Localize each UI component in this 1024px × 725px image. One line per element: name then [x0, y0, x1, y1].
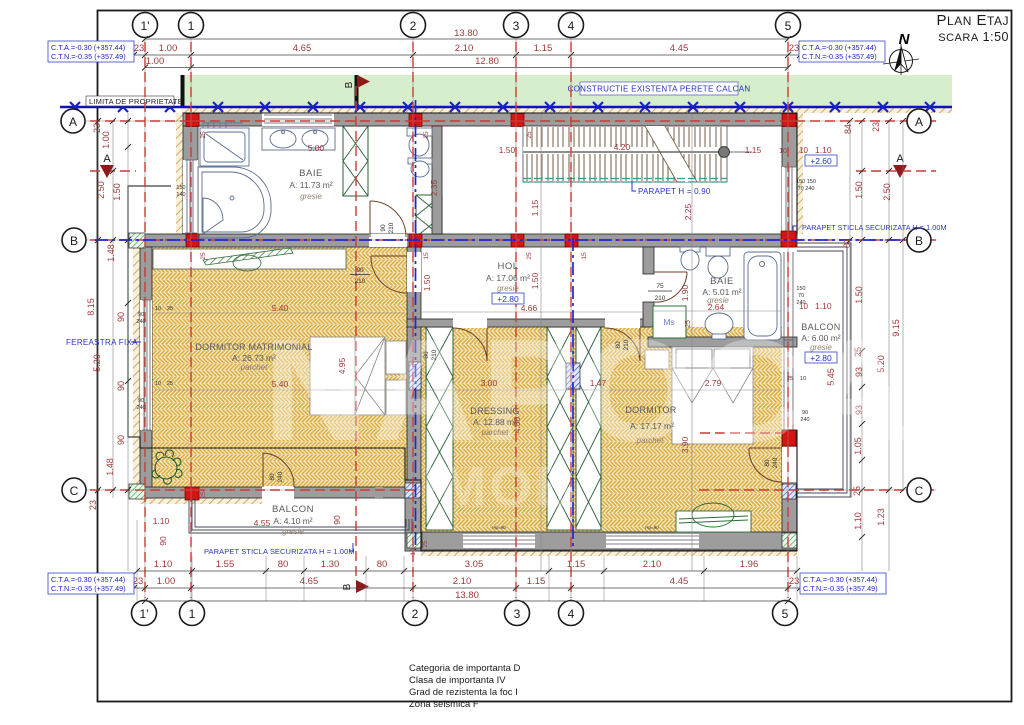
svg-text:4.65: 4.65: [293, 43, 312, 54]
svg-text:BAIE: BAIE: [299, 168, 323, 179]
svg-text:2.50: 2.50: [882, 183, 892, 201]
svg-text:80: 80: [615, 341, 622, 349]
svg-text:1: 1: [188, 19, 195, 33]
svg-text:90: 90: [380, 224, 387, 232]
svg-text:25: 25: [167, 381, 173, 387]
svg-text:1': 1': [140, 607, 149, 621]
svg-text:15: 15: [581, 252, 588, 260]
svg-text:23: 23: [789, 43, 800, 54]
svg-text:90: 90: [356, 267, 364, 274]
svg-text:84: 84: [843, 124, 853, 134]
svg-text:1.30: 1.30: [321, 559, 340, 570]
svg-text:1.00: 1.00: [157, 576, 176, 587]
svg-text:1.10: 1.10: [154, 559, 173, 570]
svg-text:25: 25: [526, 131, 533, 139]
svg-text:5.40: 5.40: [272, 379, 289, 389]
svg-text:1.15: 1.15: [527, 576, 546, 587]
svg-text:90: 90: [116, 312, 126, 322]
svg-text:1.50: 1.50: [112, 183, 122, 201]
svg-text:A: 12.88 m²: A: 12.88 m²: [473, 417, 517, 427]
svg-text:23: 23: [88, 500, 98, 510]
svg-text:C.T.A.=-0.30 (+357.44): C.T.A.=-0.30 (+357.44): [51, 43, 125, 52]
svg-text:A: 6.00 m²: A: 6.00 m²: [801, 333, 840, 343]
svg-text:15: 15: [423, 252, 430, 260]
svg-text:90: 90: [116, 435, 126, 445]
svg-text:10: 10: [799, 146, 808, 155]
svg-text:4.55: 4.55: [254, 518, 271, 528]
svg-text:2.10: 2.10: [643, 559, 662, 570]
svg-text:B: B: [344, 81, 355, 88]
svg-text:parchet: parchet: [240, 363, 268, 372]
svg-text:240: 240: [796, 300, 805, 306]
svg-text:70 240: 70 240: [798, 186, 815, 192]
svg-text:210: 210: [355, 278, 366, 285]
svg-text:1.50: 1.50: [854, 181, 864, 199]
svg-text:1.10: 1.10: [815, 145, 832, 155]
svg-text:1.48: 1.48: [106, 244, 116, 262]
svg-text:1: 1: [189, 607, 196, 621]
svg-text:A: A: [915, 115, 923, 129]
svg-text:25: 25: [200, 252, 207, 260]
svg-text:5.20: 5.20: [92, 354, 102, 372]
svg-text:1.00: 1.00: [146, 56, 165, 67]
svg-text:C.T.A.=-0.30 (+357.44): C.T.A.=-0.30 (+357.44): [803, 575, 877, 584]
svg-text:CONSTRUCTIE EXISTENTA PERETE C: CONSTRUCTIE EXISTENTA PERETE CALCAN: [568, 85, 751, 94]
svg-text:C.T.A.=-0.30 (+357.44): C.T.A.=-0.30 (+357.44): [802, 43, 876, 52]
svg-text:A: A: [103, 153, 111, 165]
svg-text:PLAN ETAJ: PLAN ETAJ: [937, 12, 1010, 29]
svg-text:C: C: [70, 484, 79, 498]
svg-text:4.45: 4.45: [670, 576, 689, 587]
svg-text:C.T.A.=-0.30 (+357.44): C.T.A.=-0.30 (+357.44): [51, 575, 125, 584]
svg-text:3.00: 3.00: [481, 378, 498, 388]
svg-text:25: 25: [200, 131, 207, 139]
svg-text:90: 90: [116, 381, 126, 391]
svg-text:4.65: 4.65: [300, 576, 319, 587]
svg-text:IMOB: IMOB: [422, 455, 578, 517]
svg-text:gresie: gresie: [282, 527, 304, 536]
svg-text:1.50: 1.50: [854, 286, 864, 304]
svg-text:+2.80: +2.80: [497, 294, 519, 304]
svg-text:2.10: 2.10: [455, 43, 474, 54]
svg-text:5.40: 5.40: [272, 303, 289, 313]
svg-text:BAIE: BAIE: [710, 276, 734, 287]
svg-text:90: 90: [138, 312, 144, 318]
svg-text:240: 240: [136, 319, 145, 325]
svg-text:FEREASTRA FIXA: FEREASTRA FIXA: [66, 338, 138, 347]
svg-text:SCARA 1:50: SCARA 1:50: [938, 30, 1009, 44]
svg-text:13.80: 13.80: [454, 28, 478, 39]
svg-text:1.90: 1.90: [680, 284, 690, 301]
svg-text:C.T.N.=-0.35 (+357.49): C.T.N.=-0.35 (+357.49): [51, 584, 126, 593]
svg-text:1.10: 1.10: [853, 512, 863, 530]
svg-text:8.15: 8.15: [86, 298, 96, 316]
svg-text:10: 10: [410, 548, 417, 556]
svg-text:2: 2: [410, 19, 417, 33]
svg-text:4.30: 4.30: [512, 416, 522, 433]
svg-text:80: 80: [278, 559, 289, 570]
svg-text:BALCON: BALCON: [272, 504, 314, 515]
svg-text:150 150: 150 150: [796, 179, 816, 185]
svg-text:4.95: 4.95: [337, 357, 347, 374]
svg-text:4.66: 4.66: [521, 303, 538, 313]
svg-text:A: 17.17 m²: A: 17.17 m²: [630, 421, 674, 431]
svg-text:240: 240: [277, 471, 284, 482]
svg-text:150: 150: [796, 286, 805, 292]
svg-text:150: 150: [176, 185, 185, 191]
svg-text:B: B: [915, 234, 923, 248]
svg-text:C.T.N.=-0.35 (+357.49): C.T.N.=-0.35 (+357.49): [803, 584, 878, 593]
svg-text:1.47: 1.47: [590, 378, 607, 388]
svg-text:BALCON: BALCON: [801, 322, 840, 332]
svg-text:1.48: 1.48: [105, 458, 115, 476]
svg-text:80: 80: [269, 473, 276, 481]
svg-text:Clasa de importanta IV: Clasa de importanta IV: [409, 675, 506, 686]
svg-text:3: 3: [514, 607, 521, 621]
svg-text:1.15: 1.15: [567, 559, 586, 570]
svg-text:B: B: [342, 583, 353, 590]
svg-text:25: 25: [852, 486, 862, 496]
svg-text:1.50: 1.50: [499, 145, 516, 155]
svg-text:1.50: 1.50: [422, 274, 432, 291]
svg-text:25: 25: [422, 540, 429, 548]
svg-text:1.15: 1.15: [534, 43, 553, 54]
svg-text:1': 1': [141, 19, 150, 33]
svg-text:210: 210: [431, 349, 438, 360]
svg-text:Categoria de importanta D: Categoria de importanta D: [409, 663, 521, 674]
svg-text:25: 25: [200, 491, 207, 499]
svg-text:75: 75: [656, 283, 664, 290]
svg-text:1.15: 1.15: [530, 199, 540, 216]
svg-text:parchet: parchet: [481, 428, 509, 437]
svg-text:1.10: 1.10: [153, 516, 170, 526]
svg-text:13.80: 13.80: [455, 590, 479, 601]
svg-text:10: 10: [155, 306, 161, 312]
svg-text:A: 26.73 m²: A: 26.73 m²: [232, 353, 276, 363]
svg-text:210: 210: [388, 222, 395, 233]
svg-text:5.00: 5.00: [308, 143, 325, 153]
svg-text:4.20: 4.20: [614, 142, 631, 152]
svg-text:parchet: parchet: [636, 436, 664, 445]
svg-text:1.00: 1.00: [159, 43, 178, 54]
svg-text:5: 5: [785, 19, 792, 33]
svg-text:25: 25: [526, 252, 533, 260]
svg-text:DRESSING: DRESSING: [470, 406, 519, 416]
svg-text:HOL: HOL: [497, 261, 518, 272]
svg-text:3.90: 3.90: [680, 436, 690, 453]
svg-text:2: 2: [412, 607, 419, 621]
svg-text:3.05: 3.05: [465, 559, 484, 570]
svg-text:140: 140: [176, 192, 185, 198]
svg-text:A: 17.06 m²: A: 17.06 m²: [486, 273, 530, 283]
svg-text:A: A: [69, 115, 77, 129]
svg-text:C.T.N.=-0.35 (+357.49): C.T.N.=-0.35 (+357.49): [51, 52, 126, 61]
svg-text:90: 90: [158, 536, 168, 546]
svg-text:4: 4: [568, 19, 575, 33]
svg-text:LIMITA DE PROPRIETATE: LIMITA DE PROPRIETATE: [89, 97, 183, 106]
svg-text:A: 4.10 m²: A: 4.10 m²: [273, 516, 312, 526]
svg-text:1.15: 1.15: [745, 145, 762, 155]
svg-text:gresie: gresie: [810, 343, 832, 352]
svg-text:PARAPET STICLA SECURIZATA H =: PARAPET STICLA SECURIZATA H = 1.00M: [802, 223, 947, 232]
svg-text:B: B: [70, 234, 78, 248]
svg-text:2.79: 2.79: [705, 378, 722, 388]
svg-text:2.25: 2.25: [683, 203, 693, 220]
svg-text:Zona seismica F: Zona seismica F: [409, 699, 479, 710]
svg-text:Hp=90: Hp=90: [492, 525, 506, 530]
svg-text:81: 81: [842, 238, 852, 248]
svg-text:2.35: 2.35: [429, 179, 439, 196]
svg-text:240: 240: [772, 457, 779, 468]
svg-text:A: 11.73 m²: A: 11.73 m²: [289, 180, 332, 190]
svg-text:80: 80: [764, 459, 771, 467]
svg-text:PARAPET STICLA SECURIZATA H =: PARAPET STICLA SECURIZATA H = 1.00M: [204, 547, 355, 556]
svg-text:23: 23: [134, 43, 145, 54]
svg-text:1.00: 1.00: [101, 131, 111, 149]
svg-text:5: 5: [782, 607, 789, 621]
svg-text:gresie: gresie: [300, 192, 322, 201]
svg-text:90: 90: [332, 515, 342, 525]
svg-text:1.55: 1.55: [216, 559, 235, 570]
svg-text:N: N: [899, 31, 911, 48]
svg-text:70: 70: [798, 293, 804, 299]
svg-text:4.45: 4.45: [670, 43, 689, 54]
svg-text:1.96: 1.96: [740, 559, 759, 570]
svg-text:90: 90: [138, 398, 144, 404]
svg-text:25: 25: [685, 320, 692, 328]
svg-text:3: 3: [513, 19, 520, 33]
svg-text:Hp=90: Hp=90: [645, 525, 659, 530]
svg-text:DORMITOR: DORMITOR: [625, 405, 676, 415]
svg-text:80: 80: [423, 351, 430, 359]
svg-text:2.10: 2.10: [453, 576, 472, 587]
svg-text:210: 210: [655, 295, 666, 302]
svg-text:+2.80: +2.80: [810, 353, 832, 363]
svg-text:240: 240: [136, 405, 145, 411]
svg-text:23: 23: [871, 122, 881, 132]
svg-text:C.T.N.=-0.35 (+357.49): C.T.N.=-0.35 (+357.49): [802, 52, 877, 61]
svg-text:DORMITOR MATRIMONIAL: DORMITOR MATRIMONIAL: [195, 342, 312, 352]
svg-text:PARAPET H = 0.90: PARAPET H = 0.90: [638, 187, 711, 196]
svg-text:2.50: 2.50: [96, 181, 106, 199]
svg-text:gresie: gresie: [497, 284, 519, 293]
svg-text:+2.60: +2.60: [810, 156, 832, 166]
svg-text:23: 23: [789, 576, 800, 587]
svg-text:Grad de rezistenta la foc I: Grad de rezistenta la foc I: [409, 687, 518, 698]
svg-text:10: 10: [155, 381, 161, 387]
svg-text:2.64: 2.64: [708, 302, 725, 312]
svg-text:25: 25: [423, 131, 430, 139]
svg-text:10: 10: [779, 148, 787, 155]
svg-text:12.80: 12.80: [475, 56, 499, 67]
svg-text:1.23: 1.23: [876, 508, 886, 526]
svg-text:C: C: [915, 484, 924, 498]
svg-text:25: 25: [167, 306, 173, 312]
svg-text:210: 210: [623, 339, 630, 350]
svg-text:1.50: 1.50: [530, 272, 540, 289]
svg-text:4: 4: [568, 607, 575, 621]
svg-text:80: 80: [377, 559, 388, 570]
